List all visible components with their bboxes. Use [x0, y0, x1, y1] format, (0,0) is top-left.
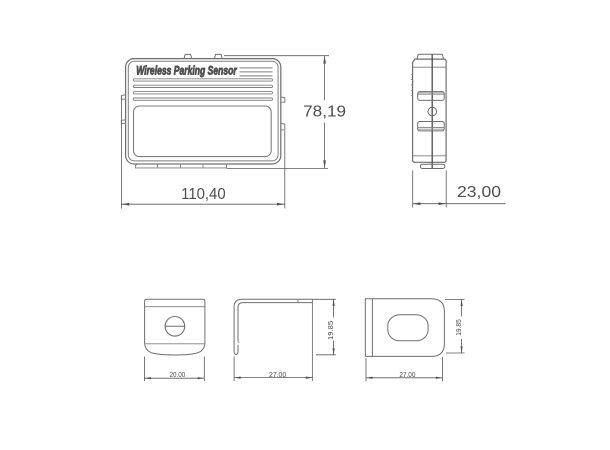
svg-text:20.00: 20.00 [170, 370, 186, 379]
svg-text:27.00: 27.00 [399, 370, 415, 379]
svg-text:23,00: 23,00 [457, 184, 501, 201]
svg-text:78,19: 78,19 [303, 103, 346, 120]
svg-text:19.85: 19.85 [326, 321, 335, 340]
svg-text:110,40: 110,40 [181, 186, 226, 203]
svg-text:Wireless Parking Sensor: Wireless Parking Sensor [136, 66, 237, 78]
svg-text:27.00: 27.00 [269, 370, 286, 379]
svg-text:19.85: 19.85 [454, 319, 463, 336]
